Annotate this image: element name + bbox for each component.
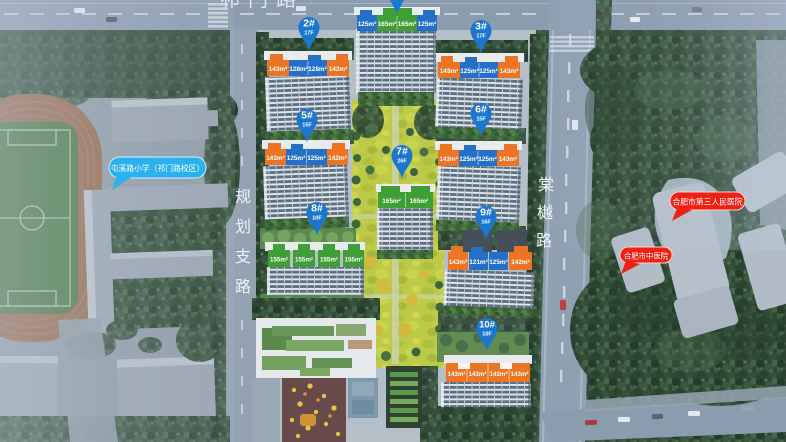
svg-text:支: 支: [235, 248, 251, 266]
svg-text:142m²: 142m²: [329, 66, 347, 73]
svg-text:棠: 棠: [538, 176, 554, 194]
svg-text:划: 划: [235, 218, 251, 236]
svg-text:10F: 10F: [482, 332, 492, 338]
svg-text:165m²: 165m²: [382, 198, 400, 205]
svg-text:143m²: 143m²: [440, 68, 458, 75]
svg-text:3#: 3#: [475, 21, 487, 33]
svg-text:143m²: 143m²: [269, 66, 287, 73]
svg-text:143m²: 143m²: [500, 68, 518, 75]
svg-text:125m²: 125m²: [358, 21, 376, 28]
svg-text:125m²: 125m²: [307, 155, 325, 162]
svg-text:7#: 7#: [396, 146, 408, 158]
svg-text:143m²: 143m²: [449, 259, 467, 266]
svg-text:165m²: 165m²: [378, 21, 396, 28]
svg-text:143m²: 143m²: [499, 156, 517, 163]
svg-text:合肥市第三人民医院: 合肥市第三人民医院: [672, 197, 742, 207]
svg-text:143m²: 143m²: [511, 371, 529, 378]
svg-text:142m²: 142m²: [328, 155, 346, 162]
svg-text:155m²: 155m²: [320, 257, 338, 264]
svg-text:2#: 2#: [303, 18, 315, 30]
svg-text:15F: 15F: [302, 123, 312, 129]
svg-text:142m²: 142m²: [511, 259, 529, 266]
svg-text:143m²: 143m²: [439, 156, 457, 163]
svg-text:樾: 樾: [537, 203, 553, 222]
svg-text:125m²: 125m²: [489, 259, 507, 266]
svg-text:125m²: 125m²: [479, 68, 497, 75]
svg-text:5#: 5#: [301, 110, 313, 122]
svg-text:15F: 15F: [476, 117, 486, 123]
svg-text:128m²: 128m²: [289, 66, 307, 73]
svg-text:155m²: 155m²: [345, 257, 363, 264]
svg-text:屯溪路小学（祁门路校区）: 屯溪路小学（祁门路校区）: [111, 163, 205, 173]
svg-text:合肥市中医院: 合肥市中医院: [624, 252, 669, 261]
svg-text:26F: 26F: [397, 159, 407, 165]
svg-text:155m²: 155m²: [295, 257, 313, 264]
svg-text:6#: 6#: [475, 104, 487, 116]
svg-text:121m²: 121m²: [469, 259, 487, 266]
svg-text:10F: 10F: [312, 216, 322, 222]
svg-text:10#: 10#: [479, 320, 496, 331]
svg-text:165m²: 165m²: [398, 21, 416, 28]
svg-text:9#: 9#: [480, 207, 492, 219]
svg-text:17F: 17F: [304, 31, 314, 37]
svg-text:143m²: 143m²: [448, 371, 466, 378]
svg-text:125m²: 125m²: [418, 21, 436, 28]
svg-text:路: 路: [536, 232, 552, 250]
svg-text:16F: 16F: [481, 220, 491, 226]
svg-text:125m²: 125m²: [459, 156, 477, 163]
svg-text:155m²: 155m²: [270, 257, 288, 264]
svg-text:143m²: 143m²: [469, 371, 487, 378]
svg-text:125m²: 125m²: [460, 68, 478, 75]
svg-text:规: 规: [235, 188, 251, 206]
svg-text:路: 路: [235, 278, 251, 296]
svg-text:143m²: 143m²: [266, 155, 284, 162]
svg-text:165m²: 165m²: [410, 198, 428, 205]
svg-text:祁门路: 祁门路: [220, 0, 304, 11]
svg-text:125m²: 125m²: [478, 156, 496, 163]
svg-text:143m²: 143m²: [490, 371, 508, 378]
svg-text:17F: 17F: [476, 34, 486, 40]
svg-text:125m²: 125m²: [287, 155, 305, 162]
svg-text:128m²: 128m²: [308, 66, 326, 73]
svg-text:8#: 8#: [311, 203, 323, 215]
